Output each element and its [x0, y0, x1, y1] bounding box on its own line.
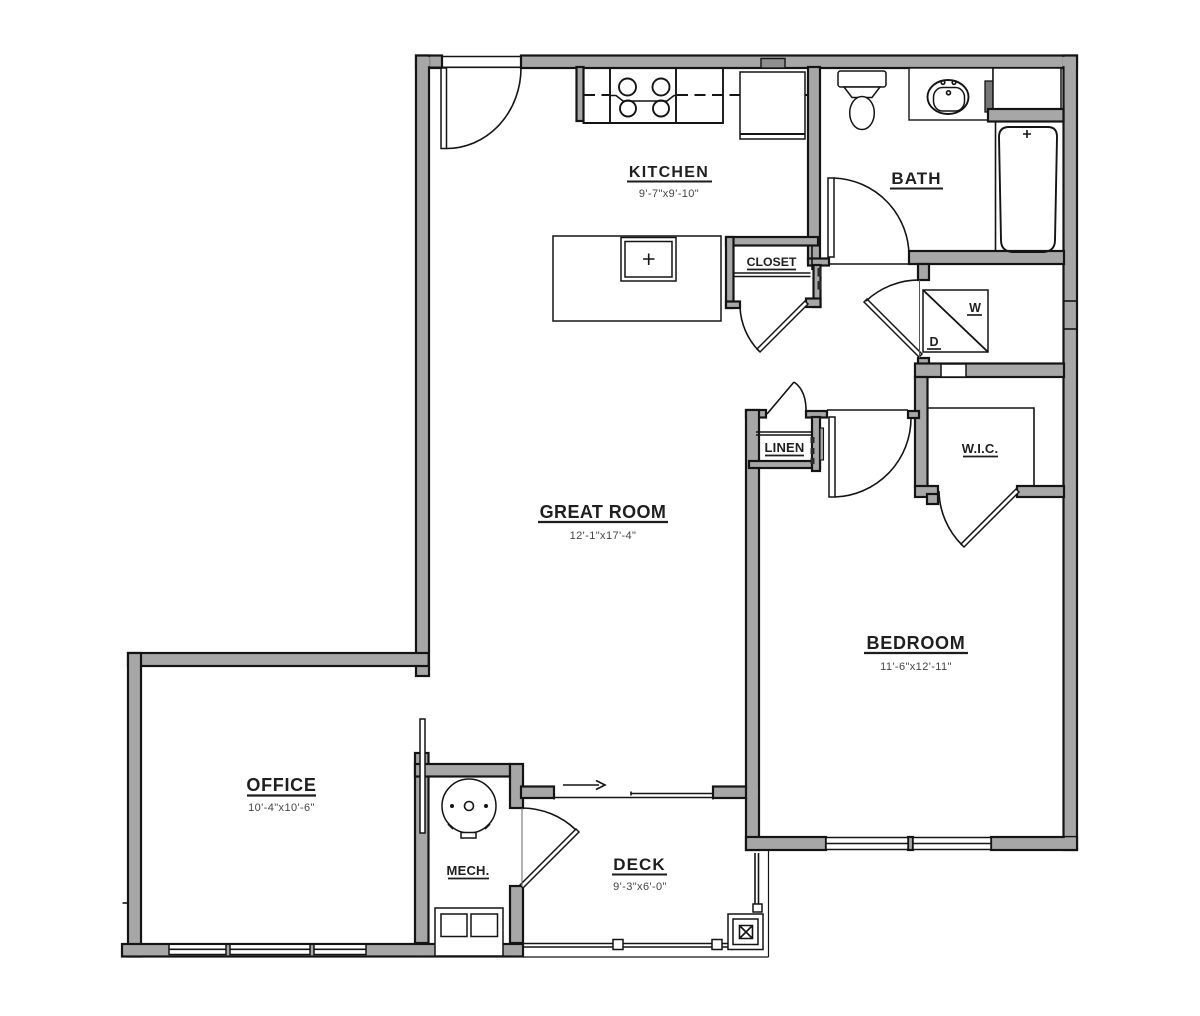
svg-text:D: D [929, 335, 938, 349]
svg-text:CLOSET: CLOSET [747, 255, 797, 269]
svg-text:11'-6"x12'-11": 11'-6"x12'-11" [880, 661, 952, 673]
svg-text:9'-7"x9'-10": 9'-7"x9'-10" [639, 188, 699, 200]
svg-text:MECH.: MECH. [447, 863, 490, 878]
svg-text:BATH: BATH [891, 169, 941, 188]
svg-text:W.I.C.: W.I.C. [962, 441, 999, 456]
svg-text:12'-1"x17'-4": 12'-1"x17'-4" [570, 530, 637, 542]
svg-text:BEDROOM: BEDROOM [867, 633, 966, 653]
svg-text:DECK: DECK [613, 855, 666, 874]
svg-text:GREAT ROOM: GREAT ROOM [540, 502, 667, 522]
svg-text:OFFICE: OFFICE [246, 775, 316, 795]
svg-text:W: W [969, 301, 981, 315]
svg-text:LINEN: LINEN [765, 440, 805, 455]
svg-text:KITCHEN: KITCHEN [629, 164, 709, 181]
svg-text:9'-3"x6'-0": 9'-3"x6'-0" [613, 881, 667, 893]
svg-text:10'-4"x10'-6": 10'-4"x10'-6" [248, 802, 315, 814]
